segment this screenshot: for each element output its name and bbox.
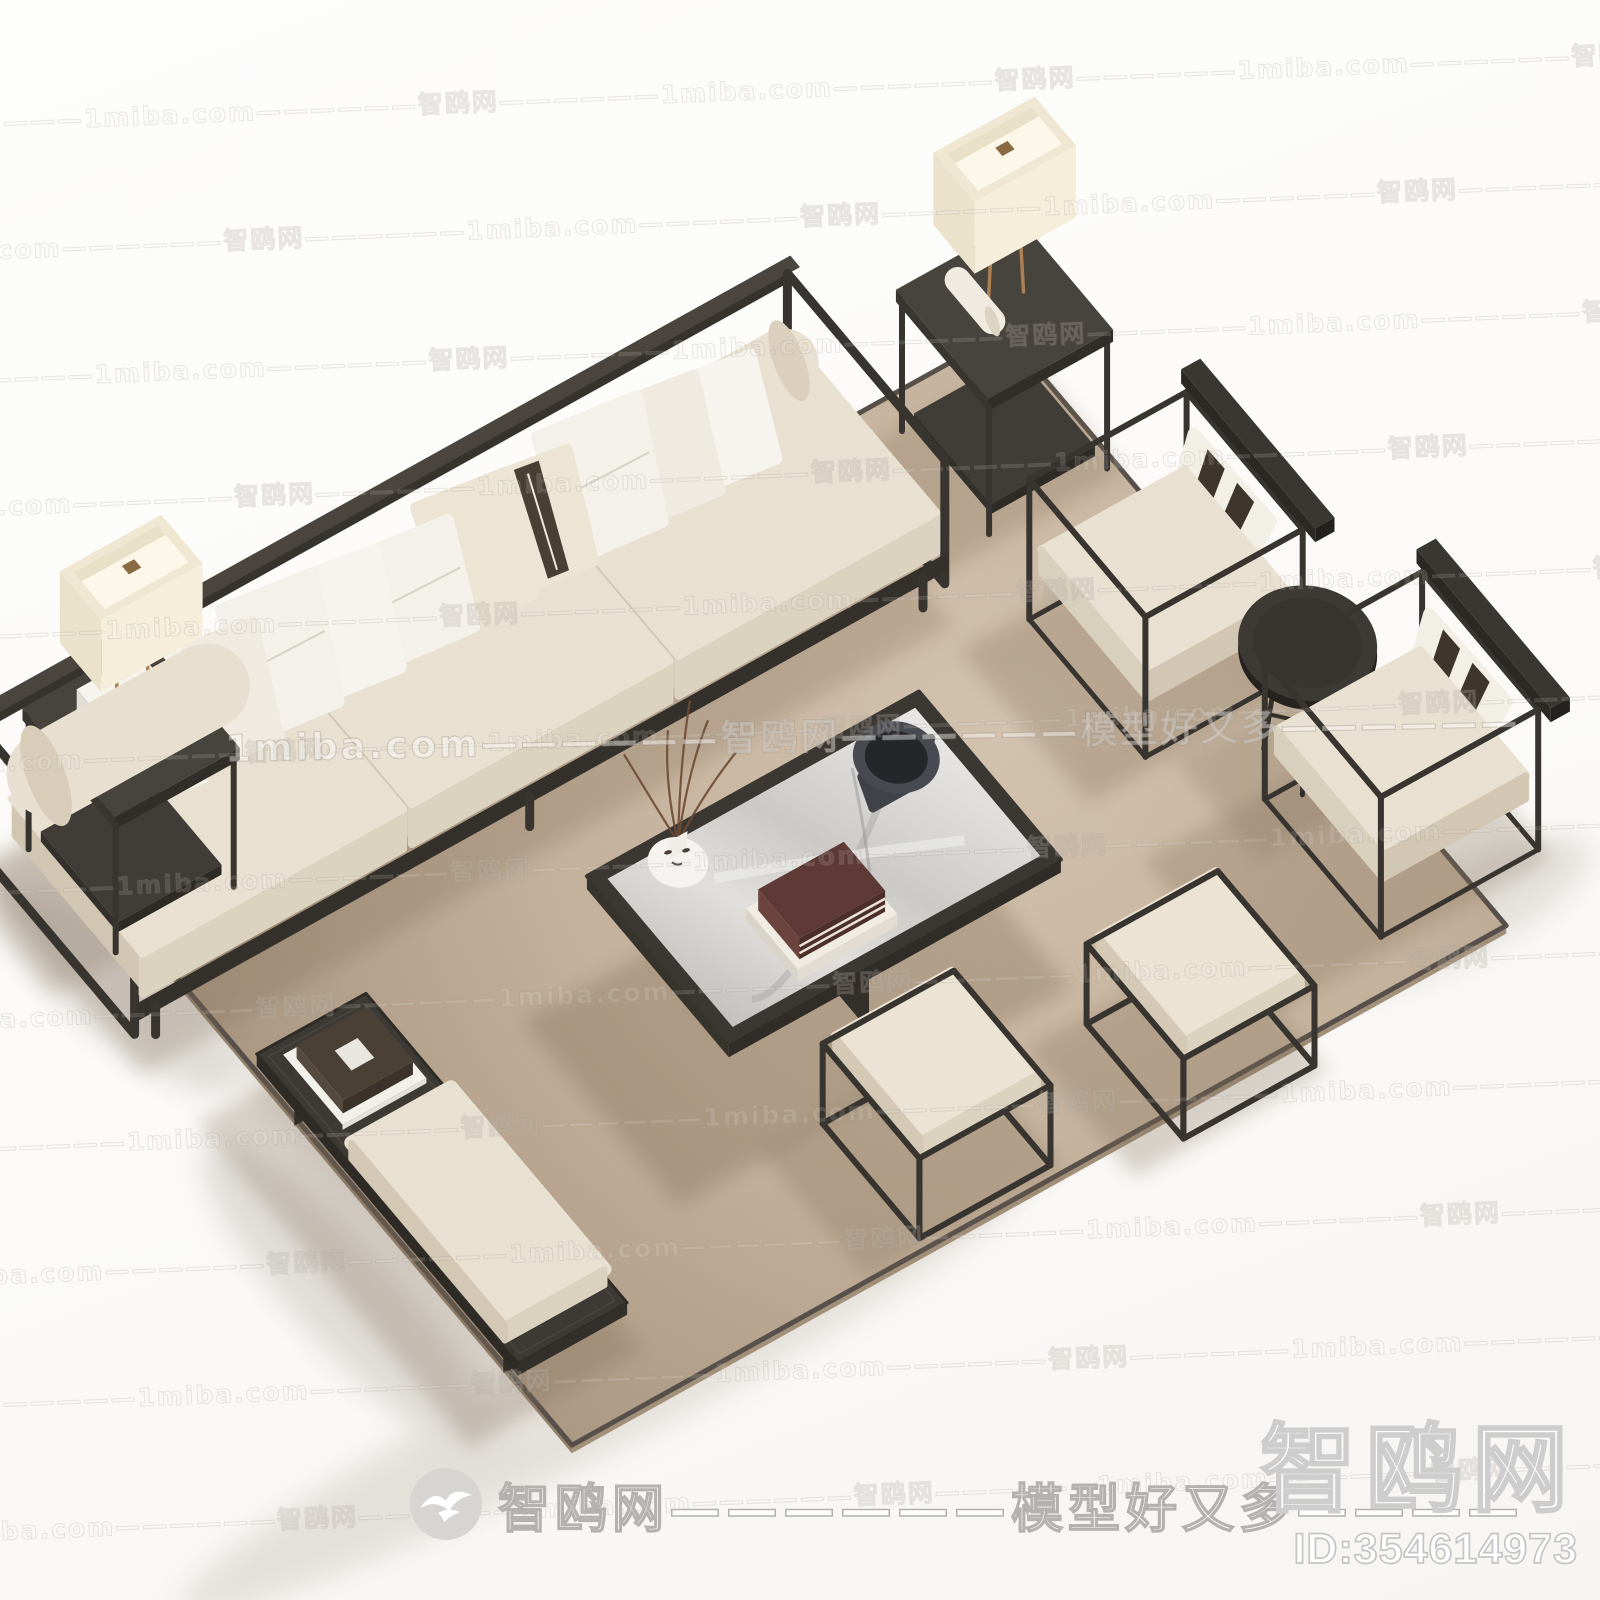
isometric-furniture-scene <box>0 0 1600 1600</box>
render-canvas: 智鸥网——————1miba.com——————智鸥网——————1miba.c… <box>0 0 1600 1600</box>
